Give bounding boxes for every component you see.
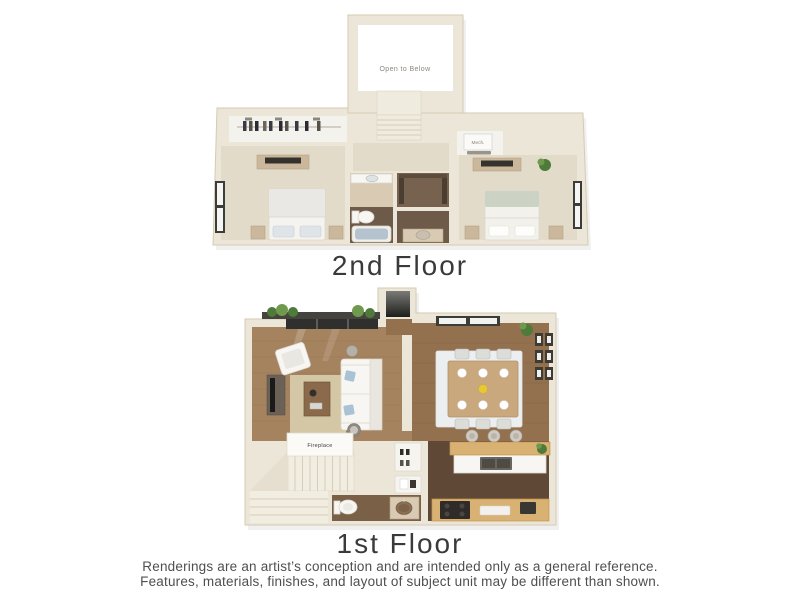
pillow-icon: [343, 404, 355, 416]
entry: [386, 291, 412, 335]
window-icon: [215, 181, 225, 233]
closet-shelf-item: [275, 118, 282, 121]
sofa-icon: [341, 359, 382, 430]
mech-closet: Mech.: [457, 131, 503, 155]
balcony-plants: [262, 304, 380, 319]
fireplace-label: Fireplace: [307, 443, 332, 449]
window-icon: [436, 316, 500, 326]
toilet-icon: [334, 500, 357, 514]
closet-shelf: [399, 178, 404, 204]
kitchen: [428, 430, 550, 521]
closet-shelf: [399, 174, 447, 178]
second-floor-label: 2nd Floor: [0, 250, 800, 282]
bathtub-icon: [352, 226, 391, 242]
window-icon: [573, 181, 582, 229]
tv-stand-icon: [267, 375, 285, 415]
linen-closet: [397, 173, 449, 207]
bedroom-right: [459, 155, 582, 240]
plant-icon: [352, 305, 364, 317]
kitchen-counter: [432, 499, 549, 521]
dish-tray-icon: [480, 506, 510, 515]
bedroom-left: [215, 146, 345, 240]
breakfast-bar: [450, 442, 550, 455]
nightstand-icon: [251, 226, 265, 239]
plant-icon: [267, 307, 277, 317]
half-bathroom: [332, 495, 421, 521]
hallway: [353, 143, 449, 171]
shoes-icon: [406, 460, 410, 466]
floorplan-flyer: Open to Below: [0, 0, 800, 600]
sink-icon: [366, 175, 378, 181]
first-floor-label: 1st Floor: [0, 528, 800, 560]
kitchen-sink-icon: [480, 457, 512, 470]
disclaimer-line1: Renderings are an artist’s conception an…: [0, 559, 800, 574]
bathroom-main: [350, 173, 393, 243]
plant-icon: [276, 304, 288, 316]
second-floor-plan: Open to Below: [205, 5, 595, 255]
dresser-icon: [257, 155, 309, 169]
storage-item: [400, 479, 408, 489]
storage-item: [410, 480, 416, 488]
entry-floor: [386, 319, 412, 335]
vanity-sink-icon: [390, 497, 419, 519]
closet-shelf-item: [313, 118, 320, 121]
second-floor-drawing: Open to Below: [205, 5, 595, 255]
bed-icon: [269, 189, 325, 240]
entry-door: [386, 291, 410, 317]
walkin-closet: [229, 116, 347, 142]
disclaimer: Renderings are an artist’s conception an…: [0, 559, 800, 589]
shoes-icon: [406, 449, 410, 455]
open-void: [358, 25, 453, 91]
plant-icon: [365, 308, 375, 318]
plant-icon: [288, 307, 298, 317]
shoes-icon: [400, 449, 404, 455]
side-table-icon: [347, 346, 358, 357]
open-to-below-label: Open to Below: [379, 66, 431, 73]
stair-landing: [377, 91, 421, 115]
nightstand-icon: [549, 226, 563, 239]
pillow-icon: [344, 370, 356, 382]
small-appliance-icon: [520, 502, 536, 514]
disclaimer-line2: Features, materials, finishes, and layou…: [0, 574, 800, 589]
dresser-icon: [473, 158, 521, 171]
sink-icon: [416, 231, 430, 240]
cooktop-icon: [440, 501, 470, 519]
nightstand-icon: [465, 226, 479, 239]
closet-shelf: [442, 178, 447, 204]
first-floor-drawing: Fireplace: [240, 283, 570, 533]
dining-table-icon: [448, 361, 518, 417]
fireplace: Fireplace: [287, 433, 353, 456]
mech-label: Mech.: [471, 140, 484, 146]
coffee-table-icon: [304, 382, 330, 416]
toilet-icon: [352, 211, 374, 223]
bar-stools: [466, 430, 522, 442]
nightstand-icon: [329, 226, 343, 239]
centerpiece-icon: [479, 385, 488, 394]
dining-room: [412, 316, 553, 441]
kitchen-island: [450, 442, 550, 473]
shoes-icon: [400, 460, 404, 466]
staircase-down: [377, 115, 421, 140]
living-room: [252, 319, 428, 441]
first-floor-plan: Fireplace: [240, 283, 570, 533]
bed-icon: [485, 191, 539, 240]
vent-icon: [467, 151, 491, 155]
pantry-closets: [395, 443, 421, 493]
closet-shelf-item: [245, 118, 252, 121]
